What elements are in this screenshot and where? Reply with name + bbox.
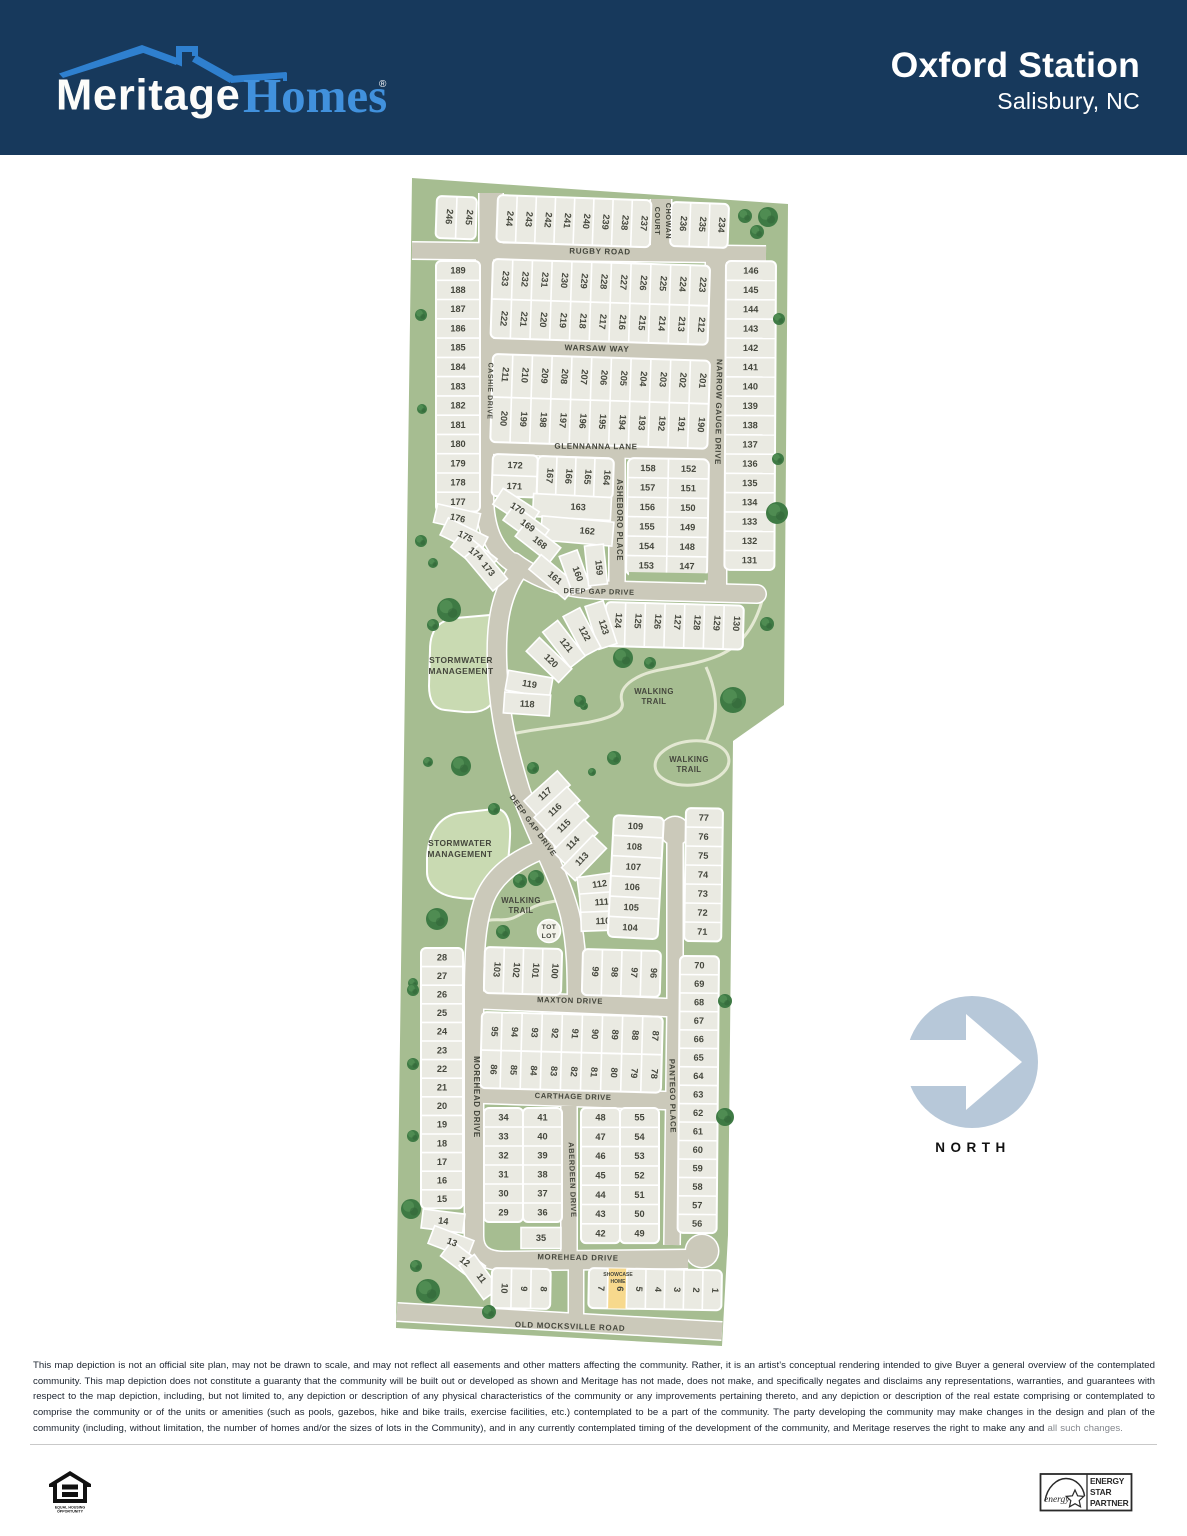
svg-text:135: 135 — [742, 478, 757, 488]
svg-text:227: 227 — [618, 274, 629, 290]
svg-text:246: 246 — [444, 208, 456, 224]
svg-text:130: 130 — [731, 616, 742, 632]
svg-text:234: 234 — [716, 217, 728, 234]
svg-text:89: 89 — [610, 1029, 621, 1040]
svg-text:15: 15 — [437, 1194, 447, 1204]
svg-text:45: 45 — [595, 1171, 605, 1181]
svg-text:131: 131 — [742, 555, 757, 565]
svg-text:CHOWAN: CHOWAN — [664, 203, 673, 239]
svg-text:202: 202 — [677, 372, 688, 388]
svg-text:218: 218 — [577, 313, 588, 329]
svg-text:93: 93 — [529, 1027, 540, 1038]
svg-text:215: 215 — [636, 315, 647, 331]
svg-text:8: 8 — [538, 1286, 548, 1292]
svg-text:96: 96 — [648, 967, 659, 978]
svg-text:140: 140 — [743, 381, 758, 391]
svg-text:223: 223 — [697, 277, 708, 293]
svg-text:142: 142 — [743, 343, 758, 353]
svg-text:199: 199 — [518, 411, 529, 427]
svg-text:58: 58 — [692, 1182, 702, 1192]
svg-text:5: 5 — [634, 1286, 644, 1292]
svg-text:GLENNANNA LANE: GLENNANNA LANE — [554, 442, 637, 452]
svg-text:124: 124 — [613, 612, 625, 629]
svg-text:197: 197 — [557, 412, 568, 428]
svg-text:186: 186 — [450, 323, 465, 333]
svg-text:181: 181 — [450, 420, 465, 430]
svg-text:220: 220 — [538, 312, 549, 328]
svg-text:190: 190 — [696, 417, 707, 433]
svg-text:19: 19 — [437, 1120, 447, 1130]
svg-text:41: 41 — [537, 1113, 547, 1123]
svg-text:81: 81 — [588, 1067, 599, 1078]
svg-text:66: 66 — [694, 1034, 704, 1044]
svg-text:139: 139 — [743, 401, 758, 411]
svg-text:143: 143 — [743, 324, 758, 334]
svg-text:188: 188 — [450, 285, 465, 295]
svg-text:152: 152 — [681, 464, 697, 474]
svg-text:213: 213 — [676, 316, 687, 332]
svg-text:210: 210 — [519, 367, 530, 383]
svg-text:33: 33 — [498, 1132, 508, 1142]
svg-text:27: 27 — [437, 971, 447, 981]
svg-text:75: 75 — [698, 851, 708, 861]
svg-text:88: 88 — [630, 1030, 641, 1041]
svg-text:49: 49 — [634, 1229, 644, 1239]
svg-text:47: 47 — [595, 1132, 605, 1142]
svg-text:172: 172 — [507, 460, 523, 471]
svg-text:39: 39 — [537, 1151, 547, 1161]
svg-text:245: 245 — [463, 209, 475, 225]
svg-text:180: 180 — [450, 439, 465, 449]
svg-text:136: 136 — [742, 459, 757, 469]
svg-text:71: 71 — [697, 927, 707, 937]
svg-text:79: 79 — [629, 1068, 640, 1079]
svg-text:28: 28 — [437, 952, 447, 962]
svg-text:125: 125 — [632, 613, 643, 629]
svg-text:165: 165 — [582, 469, 594, 485]
svg-text:104: 104 — [622, 922, 639, 933]
svg-text:224: 224 — [677, 276, 689, 293]
svg-text:183: 183 — [450, 381, 465, 391]
svg-text:153: 153 — [639, 560, 655, 570]
svg-text:RUGBY ROAD: RUGBY ROAD — [569, 246, 631, 256]
svg-text:102: 102 — [511, 962, 522, 978]
svg-text:171: 171 — [507, 481, 523, 492]
svg-text:217: 217 — [597, 314, 608, 330]
svg-text:65: 65 — [693, 1053, 703, 1063]
svg-text:56: 56 — [692, 1219, 702, 1229]
svg-text:83: 83 — [548, 1066, 559, 1077]
svg-text:MANAGEMENT: MANAGEMENT — [429, 666, 494, 676]
svg-text:16: 16 — [437, 1176, 447, 1186]
svg-text:91: 91 — [569, 1028, 580, 1039]
svg-text:147: 147 — [679, 561, 695, 571]
svg-text:137: 137 — [742, 439, 757, 449]
svg-text:105: 105 — [623, 902, 639, 913]
svg-text:WALKING: WALKING — [669, 755, 709, 764]
svg-text:145: 145 — [743, 285, 758, 295]
svg-text:37: 37 — [537, 1189, 547, 1199]
svg-text:18: 18 — [437, 1138, 447, 1148]
svg-text:7: 7 — [596, 1285, 606, 1291]
svg-text:MAXTON DRIVE: MAXTON DRIVE — [537, 995, 603, 1006]
svg-text:209: 209 — [539, 368, 550, 384]
svg-text:240: 240 — [581, 213, 593, 229]
svg-text:216: 216 — [617, 314, 628, 330]
svg-text:ENERGY: ENERGY — [1090, 1476, 1125, 1486]
svg-text:CASHIE DRIVE: CASHIE DRIVE — [486, 362, 494, 419]
svg-text:225: 225 — [657, 275, 668, 291]
svg-text:9: 9 — [519, 1286, 529, 1292]
svg-text:76: 76 — [698, 832, 708, 842]
svg-text:179: 179 — [450, 458, 465, 468]
svg-text:NARROW GAUGE DRIVE: NARROW GAUGE DRIVE — [713, 359, 724, 465]
svg-text:191: 191 — [676, 416, 687, 432]
svg-text:LOT: LOT — [542, 933, 557, 940]
svg-text:44: 44 — [595, 1190, 606, 1200]
svg-text:HOME: HOME — [611, 1279, 627, 1285]
svg-text:SHOWCASE: SHOWCASE — [603, 1272, 633, 1278]
svg-text:50: 50 — [634, 1209, 644, 1219]
svg-text:219: 219 — [557, 312, 568, 328]
svg-text:MOREHEAD DRIVE: MOREHEAD DRIVE — [537, 1252, 618, 1262]
svg-text:194: 194 — [616, 414, 628, 431]
svg-text:128: 128 — [691, 614, 702, 630]
svg-text:78: 78 — [649, 1068, 660, 1079]
svg-text:59: 59 — [692, 1163, 702, 1173]
svg-text:236: 236 — [678, 215, 690, 231]
svg-text:38: 38 — [537, 1170, 547, 1180]
svg-text:100: 100 — [549, 963, 560, 979]
svg-text:189: 189 — [450, 266, 465, 276]
svg-text:6: 6 — [615, 1286, 625, 1292]
svg-text:241: 241 — [562, 212, 574, 228]
svg-text:51: 51 — [634, 1190, 644, 1200]
svg-text:61: 61 — [693, 1126, 703, 1136]
svg-text:STORMWATER: STORMWATER — [428, 838, 492, 848]
svg-text:201: 201 — [697, 373, 708, 389]
svg-text:184: 184 — [450, 362, 466, 372]
svg-text:244: 244 — [504, 210, 516, 227]
svg-text:193: 193 — [636, 415, 647, 431]
svg-text:WALKING: WALKING — [501, 896, 541, 905]
svg-text:67: 67 — [694, 1016, 704, 1026]
svg-text:192: 192 — [656, 415, 667, 431]
svg-text:177: 177 — [450, 497, 465, 507]
svg-text:228: 228 — [598, 274, 609, 290]
svg-text:167: 167 — [544, 467, 556, 483]
svg-text:92: 92 — [549, 1028, 560, 1039]
svg-text:40: 40 — [537, 1132, 547, 1142]
svg-text:64: 64 — [693, 1071, 704, 1081]
svg-text:2: 2 — [691, 1287, 701, 1293]
svg-text:206: 206 — [598, 370, 609, 386]
svg-text:1: 1 — [710, 1287, 720, 1293]
svg-text:55: 55 — [634, 1113, 644, 1123]
svg-text:31: 31 — [498, 1170, 508, 1180]
svg-text:73: 73 — [698, 889, 708, 899]
svg-text:118: 118 — [519, 699, 534, 710]
svg-text:146: 146 — [743, 266, 758, 276]
svg-text:132: 132 — [742, 536, 757, 546]
svg-text:MANAGEMENT: MANAGEMENT — [428, 849, 493, 859]
svg-text:98: 98 — [609, 966, 620, 977]
svg-text:42: 42 — [595, 1229, 605, 1239]
svg-text:74: 74 — [698, 870, 709, 880]
svg-text:211: 211 — [500, 367, 511, 383]
svg-text:232: 232 — [519, 271, 530, 287]
svg-text:PANTEGO PLACE: PANTEGO PLACE — [667, 1059, 677, 1134]
svg-text:90: 90 — [589, 1029, 600, 1040]
svg-text:200: 200 — [498, 410, 509, 426]
svg-text:WARSAW WAY: WARSAW WAY — [564, 343, 629, 354]
svg-text:22: 22 — [437, 1064, 447, 1074]
svg-text:205: 205 — [618, 370, 629, 386]
svg-text:36: 36 — [537, 1208, 547, 1218]
svg-text:94: 94 — [509, 1026, 520, 1038]
svg-text:30: 30 — [498, 1189, 508, 1199]
svg-text:158: 158 — [640, 463, 656, 473]
svg-text:109: 109 — [628, 821, 644, 832]
svg-text:24: 24 — [437, 1027, 448, 1037]
svg-text:203: 203 — [657, 371, 668, 387]
svg-text:COURT: COURT — [653, 207, 662, 236]
svg-text:106: 106 — [624, 882, 640, 893]
svg-text:46: 46 — [595, 1151, 605, 1161]
svg-text:162: 162 — [579, 525, 595, 536]
svg-text:141: 141 — [743, 362, 758, 372]
svg-text:178: 178 — [450, 478, 465, 488]
svg-text:127: 127 — [672, 614, 683, 630]
svg-text:155: 155 — [639, 521, 655, 531]
svg-text:52: 52 — [634, 1171, 644, 1181]
svg-text:72: 72 — [697, 908, 707, 918]
svg-text:TRAIL: TRAIL — [509, 906, 534, 915]
svg-text:57: 57 — [692, 1200, 702, 1210]
svg-text:68: 68 — [694, 997, 704, 1007]
svg-text:144: 144 — [743, 304, 759, 314]
svg-text:182: 182 — [450, 401, 465, 411]
svg-text:86: 86 — [488, 1064, 499, 1075]
svg-text:STORMWATER: STORMWATER — [429, 655, 493, 665]
svg-text:43: 43 — [595, 1209, 605, 1219]
svg-text:103: 103 — [491, 961, 502, 977]
svg-text:129: 129 — [711, 615, 722, 631]
svg-text:207: 207 — [578, 369, 589, 385]
svg-text:TOT: TOT — [542, 924, 557, 931]
svg-text:208: 208 — [559, 368, 570, 384]
svg-text:3: 3 — [672, 1287, 682, 1293]
svg-text:21: 21 — [437, 1083, 447, 1093]
svg-text:10: 10 — [499, 1283, 510, 1294]
svg-text:NORTH: NORTH — [935, 1140, 1011, 1155]
svg-text:233: 233 — [500, 270, 511, 286]
svg-text:214: 214 — [656, 315, 668, 332]
svg-text:111: 111 — [594, 897, 609, 908]
svg-text:95: 95 — [489, 1026, 500, 1037]
svg-text:108: 108 — [626, 841, 642, 852]
svg-text:212: 212 — [696, 317, 707, 333]
svg-text:149: 149 — [680, 522, 696, 532]
svg-text:34: 34 — [498, 1113, 509, 1123]
svg-text:107: 107 — [625, 861, 641, 872]
svg-text:164: 164 — [601, 469, 613, 486]
svg-text:DEEP GAP DRIVE: DEEP GAP DRIVE — [563, 586, 634, 597]
svg-text:195: 195 — [597, 414, 608, 430]
svg-text:85: 85 — [508, 1064, 519, 1075]
svg-text:185: 185 — [450, 343, 465, 353]
svg-text:23: 23 — [437, 1045, 447, 1055]
svg-text:151: 151 — [681, 483, 697, 493]
svg-text:159: 159 — [593, 560, 605, 576]
svg-text:ASHEBORO PLACE: ASHEBORO PLACE — [615, 479, 624, 561]
svg-text:154: 154 — [639, 541, 655, 551]
svg-text:17: 17 — [437, 1157, 447, 1167]
svg-text:204: 204 — [638, 371, 650, 388]
svg-text:243: 243 — [523, 211, 535, 227]
svg-text:35: 35 — [536, 1233, 546, 1243]
svg-text:156: 156 — [640, 502, 656, 512]
svg-text:101: 101 — [530, 962, 541, 978]
svg-text:25: 25 — [437, 1008, 447, 1018]
svg-text:133: 133 — [742, 517, 757, 527]
svg-text:26: 26 — [437, 990, 447, 1000]
svg-text:138: 138 — [742, 420, 757, 430]
svg-text:150: 150 — [680, 503, 696, 513]
svg-text:231: 231 — [539, 272, 550, 288]
svg-text:238: 238 — [619, 215, 631, 231]
svg-text:OPPORTUNITY: OPPORTUNITY — [57, 1510, 84, 1514]
svg-text:242: 242 — [542, 212, 554, 228]
svg-text:163: 163 — [570, 502, 586, 513]
svg-text:99: 99 — [590, 966, 601, 977]
svg-text:77: 77 — [699, 813, 709, 823]
svg-text:80: 80 — [609, 1067, 620, 1078]
svg-text:60: 60 — [693, 1145, 703, 1155]
svg-text:229: 229 — [578, 273, 589, 289]
svg-text:54: 54 — [634, 1132, 645, 1142]
svg-text:134: 134 — [742, 497, 758, 507]
svg-text:TRAIL: TRAIL — [642, 697, 667, 706]
svg-text:226: 226 — [638, 275, 649, 291]
svg-text:63: 63 — [693, 1090, 703, 1100]
svg-text:97: 97 — [629, 967, 640, 978]
svg-text:126: 126 — [652, 613, 663, 629]
svg-text:198: 198 — [538, 412, 549, 428]
svg-text:PARTNER: PARTNER — [1090, 1498, 1129, 1508]
svg-text:MOREHEAD DRIVE: MOREHEAD DRIVE — [472, 1056, 481, 1138]
svg-text:82: 82 — [568, 1066, 579, 1077]
svg-text:221: 221 — [518, 311, 529, 327]
svg-text:32: 32 — [498, 1151, 508, 1161]
svg-text:53: 53 — [634, 1151, 644, 1161]
svg-text:187: 187 — [450, 304, 465, 314]
svg-text:48: 48 — [595, 1113, 605, 1123]
svg-text:235: 235 — [697, 216, 709, 232]
svg-text:166: 166 — [563, 468, 575, 484]
svg-text:70: 70 — [694, 960, 704, 970]
svg-text:112: 112 — [592, 878, 608, 890]
svg-text:TRAIL: TRAIL — [677, 765, 702, 774]
svg-text:29: 29 — [498, 1208, 508, 1218]
svg-text:20: 20 — [437, 1101, 447, 1111]
svg-text:62: 62 — [693, 1108, 703, 1118]
svg-text:239: 239 — [600, 214, 612, 230]
svg-text:237: 237 — [638, 215, 650, 231]
svg-text:STAR: STAR — [1090, 1487, 1112, 1497]
svg-text:84: 84 — [528, 1065, 539, 1077]
svg-text:230: 230 — [559, 272, 570, 288]
svg-text:WALKING: WALKING — [634, 687, 674, 696]
svg-text:222: 222 — [498, 310, 509, 326]
svg-text:148: 148 — [680, 542, 696, 552]
svg-text:87: 87 — [650, 1030, 661, 1041]
svg-text:69: 69 — [694, 979, 704, 989]
svg-text:157: 157 — [640, 482, 656, 492]
svg-text:196: 196 — [577, 413, 588, 429]
